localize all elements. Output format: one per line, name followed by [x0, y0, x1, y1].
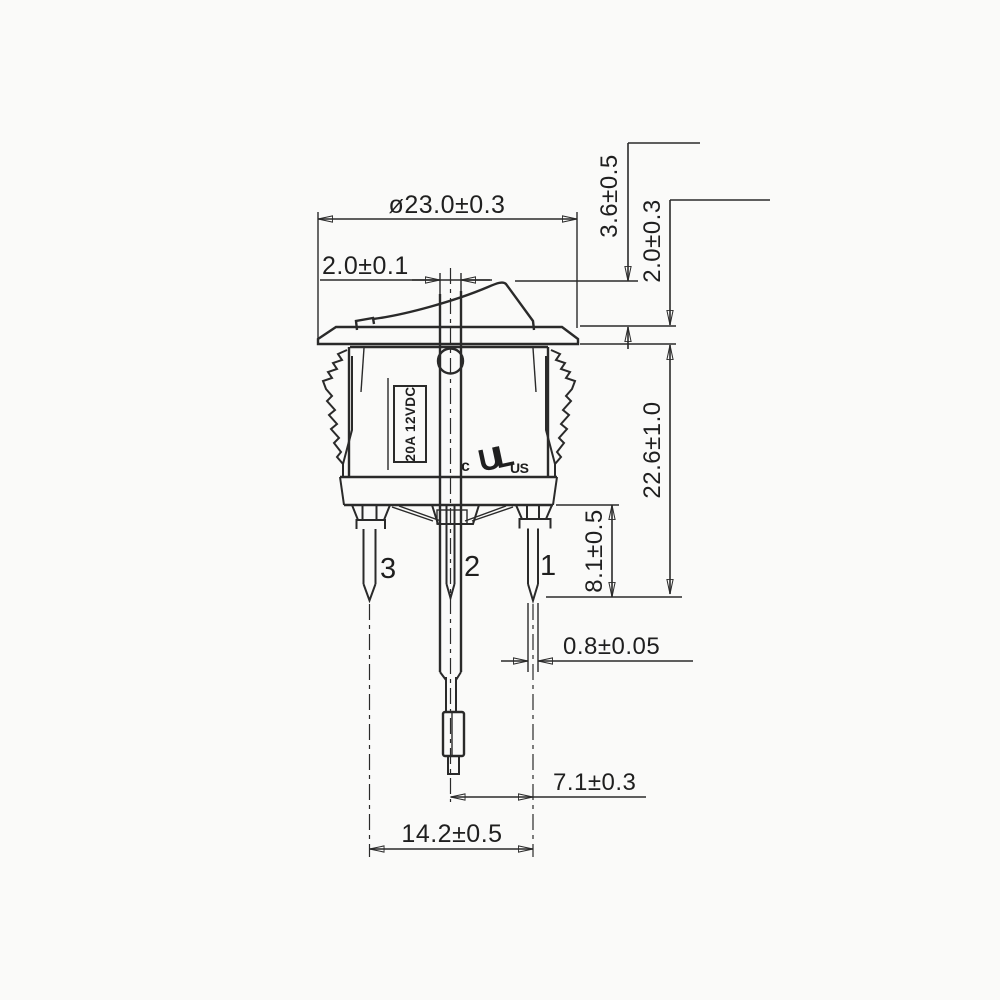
dim-pitch-center-text: 7.1±0.3 [553, 769, 636, 796]
rating-label: 20A 12VDC [394, 386, 426, 462]
dim-terminal-length: 8.1±0.5 [546, 505, 682, 597]
dim-terminal-thickness-text: 0.8±0.05 [563, 633, 660, 660]
drawing-page: 20A 12VDC c UL US [0, 0, 1000, 1000]
dim-body-depth: 22.6±1.0 [639, 345, 670, 594]
terminal-labels: 3 2 1 [380, 550, 556, 585]
terminal-1 [520, 505, 551, 672]
dim-flange-thickness-text: 2.0±0.3 [639, 199, 666, 282]
dim-body-depth-text: 22.6±1.0 [639, 401, 666, 498]
dim-pitch-outer-text: 14.2±0.5 [401, 820, 502, 848]
dim-rocker-height: 3.6±0.5 [515, 143, 700, 349]
ul-suffix-us: US [510, 460, 529, 476]
left-spring-clip [323, 350, 347, 476]
dim-pitch-center: 7.1±0.3 [451, 769, 647, 797]
dim-terminal-thickness: 0.8±0.05 [501, 633, 693, 661]
terminal-3-label: 3 [380, 553, 396, 585]
terminal-1-label: 1 [540, 550, 556, 582]
dim-rocker-height-text: 3.6±0.5 [596, 154, 623, 237]
right-spring-clip [551, 350, 575, 476]
dim-diameter-text: ø23.0±0.3 [389, 191, 506, 219]
ul-prefix-c: c [461, 458, 470, 475]
rating-text: 20A 12VDC [403, 386, 418, 461]
ul-certification-mark: c UL US [461, 437, 529, 478]
dim-stem-width: 2.0±0.1 [320, 252, 492, 296]
dim-pitch-outer: 14.2±0.5 [370, 820, 534, 849]
center-stem-terminal-2 [437, 291, 467, 774]
rocker-actuator [356, 283, 534, 330]
dim-stem-width-text: 2.0±0.1 [322, 252, 409, 280]
rocker-switch-technical-drawing: 20A 12VDC c UL US [0, 0, 1000, 1000]
connector-block [443, 712, 464, 756]
terminal-2-label: 2 [464, 551, 480, 583]
dim-terminal-length-text: 8.1±0.5 [581, 509, 608, 592]
